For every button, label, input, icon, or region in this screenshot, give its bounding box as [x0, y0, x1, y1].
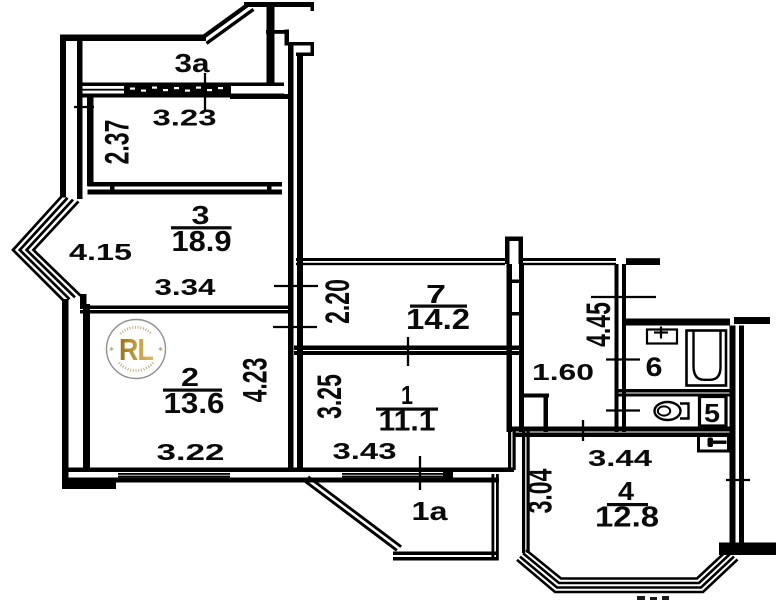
svg-text:13.6: 13.6 [164, 388, 225, 420]
svg-text:3.22: 3.22 [157, 439, 225, 465]
svg-text:RL: RL [119, 332, 153, 367]
svg-text:14.2: 14.2 [406, 304, 470, 336]
svg-text:3a: 3a [175, 48, 211, 78]
svg-text:3.04: 3.04 [521, 468, 560, 513]
svg-text:1a: 1a [412, 496, 449, 526]
svg-text:3.34: 3.34 [155, 274, 216, 300]
svg-text:3.44: 3.44 [588, 445, 652, 471]
svg-text:5: 5 [704, 398, 720, 428]
svg-text:3.25: 3.25 [310, 374, 349, 419]
svg-text:2.20: 2.20 [318, 279, 357, 324]
svg-text:4.45: 4.45 [579, 302, 618, 347]
svg-text:6: 6 [646, 352, 663, 382]
svg-text:11.1: 11.1 [379, 406, 436, 438]
svg-text:4.15: 4.15 [69, 239, 132, 265]
svg-text:18.9: 18.9 [172, 226, 232, 258]
svg-text:12.8: 12.8 [595, 502, 659, 534]
svg-text:1.60: 1.60 [532, 359, 594, 385]
svg-text:3.43: 3.43 [333, 438, 397, 464]
svg-text:4.23: 4.23 [236, 358, 275, 403]
svg-text:3.23: 3.23 [153, 105, 217, 131]
svg-text:2.37: 2.37 [98, 120, 137, 165]
